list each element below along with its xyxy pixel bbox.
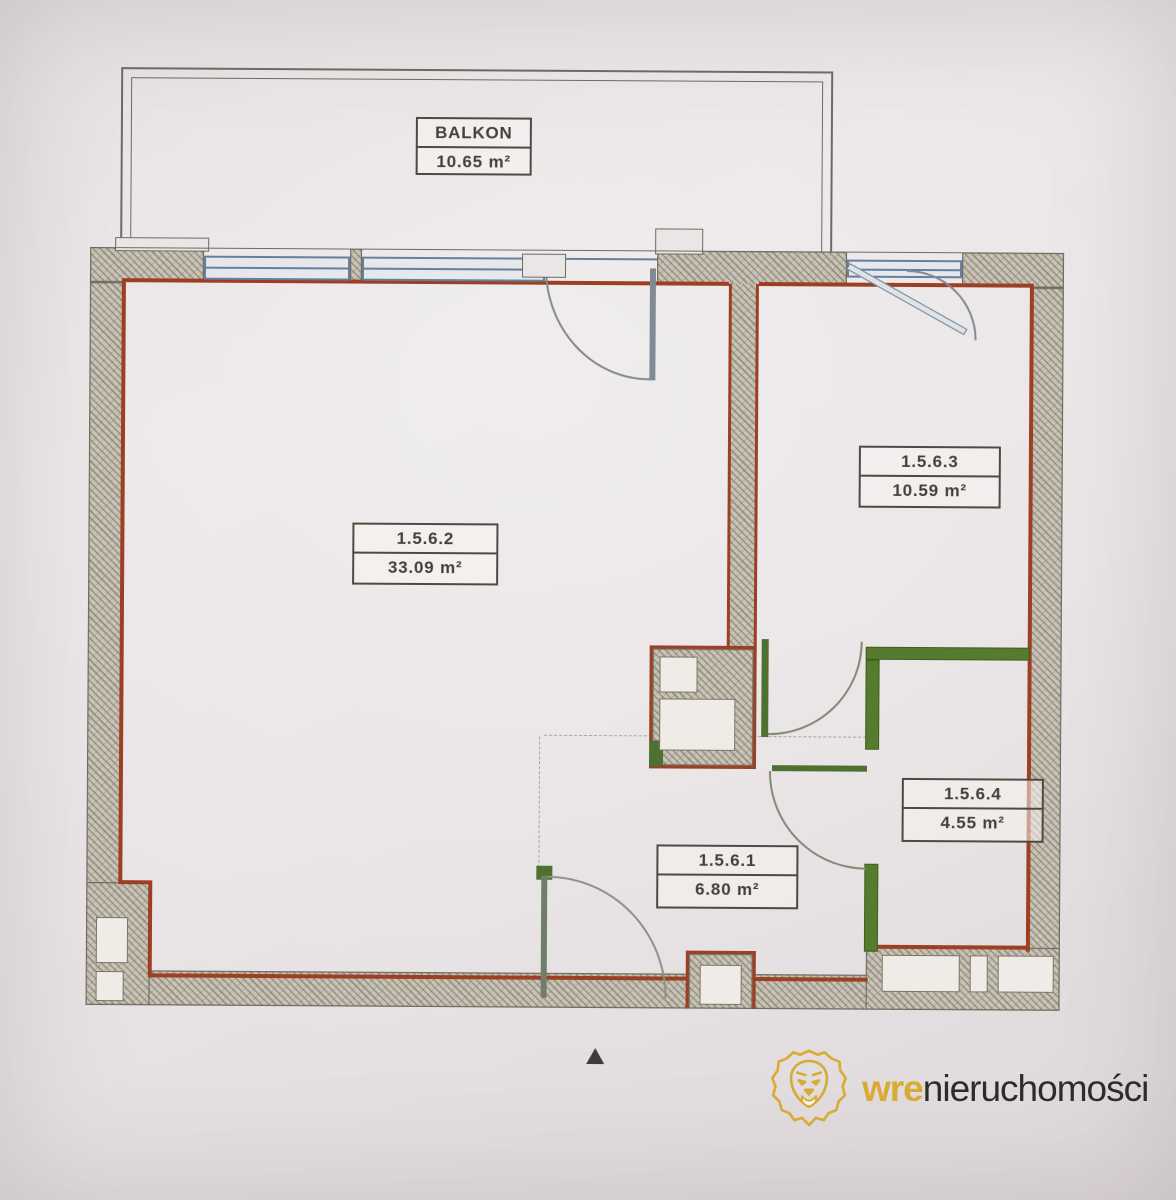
room-label-bathroom: 1.5.6.4 4.55 m² <box>902 778 1044 843</box>
window-living-left <box>204 256 350 281</box>
room-area: 10.59 m² <box>861 477 999 505</box>
brand-name: nieruchomości <box>923 1068 1149 1109</box>
room-id: 1.5.6.2 <box>354 525 496 555</box>
room-id: 1.5.6.4 <box>904 780 1042 810</box>
balcony-door-leaf <box>649 268 656 380</box>
agency-wordmark: wrenieruchomości <box>862 1068 1148 1110</box>
shaft-duct <box>659 698 735 750</box>
north-arrow-icon <box>586 1048 604 1064</box>
hall-boundary-dashed-v <box>538 737 540 873</box>
balcony-divider <box>655 228 703 254</box>
room-area: 33.09 m² <box>354 554 496 582</box>
scanned-floor-plan-photo: BALKON 10.65 m² 1.5.6.2 33.09 m² 1.5.6.3… <box>0 0 1176 1200</box>
shaft-duct <box>659 656 697 692</box>
wall-recess <box>96 917 128 963</box>
balcony-name: BALKON <box>418 119 530 149</box>
bedroom-door-swing-arc <box>768 641 863 736</box>
room-label-living: 1.5.6.2 33.09 m² <box>352 523 498 586</box>
green-wall-bathroom-left-upper <box>865 660 880 750</box>
green-wall-bathroom-left-lower <box>864 864 879 952</box>
room-id: 1.5.6.1 <box>658 846 796 876</box>
interior-line-step-v <box>148 882 153 977</box>
room-area: 6.80 m² <box>658 875 796 903</box>
brand-accent: wre <box>862 1068 923 1109</box>
hall-door-leaf <box>541 876 548 998</box>
balcony-slab-edge <box>115 237 209 252</box>
room-id: 1.5.6.3 <box>861 448 999 478</box>
partition-wall-living-bedroom <box>727 284 759 646</box>
window-sill-detail <box>522 254 566 278</box>
wall-recess <box>998 956 1054 993</box>
entrance-recess <box>700 965 742 1005</box>
wall-top-left-segment <box>90 247 204 283</box>
interior-line-top-bedroom <box>759 282 1032 288</box>
lion-icon <box>770 1048 848 1130</box>
floor-plan: BALKON 10.65 m² 1.5.6.2 33.09 m² 1.5.6.3… <box>0 0 1176 1200</box>
wall-window-mullion <box>350 249 362 284</box>
window-living-right <box>362 257 545 282</box>
bathroom-door-leaf <box>772 765 867 772</box>
green-wall-bathroom-top <box>866 647 1030 661</box>
room-area: 4.55 m² <box>904 809 1042 837</box>
room-label-bedroom: 1.5.6.3 10.59 m² <box>859 446 1001 509</box>
wall-recess <box>96 971 124 1001</box>
agency-logo: wrenieruchomości <box>770 1048 1148 1130</box>
hall-door-swing-arc <box>547 876 668 999</box>
balcony-door-swing-arc <box>544 268 650 381</box>
window-glass-line <box>206 267 348 270</box>
wall-recess <box>882 955 960 992</box>
balcony-area: 10.65 m² <box>418 148 530 176</box>
wall-recess <box>970 955 988 992</box>
window-glass-line <box>364 268 543 271</box>
room-label-hall: 1.5.6.1 6.80 m² <box>656 844 798 909</box>
balcony-label: BALKON 10.65 m² <box>416 117 532 176</box>
window-glass-line <box>849 269 960 272</box>
bedroom-door-leaf <box>761 639 769 737</box>
interior-line-bottom-hall <box>754 977 868 982</box>
